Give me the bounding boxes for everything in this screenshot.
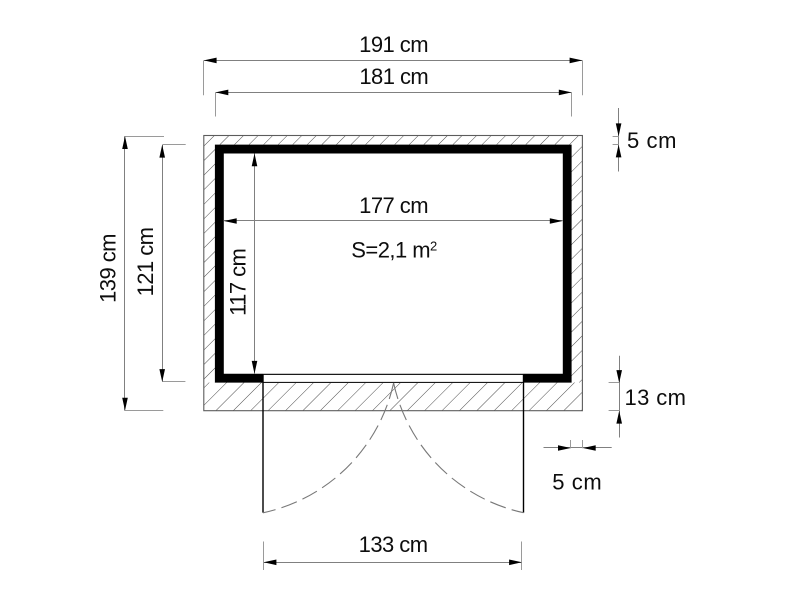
svg-text:117 cm: 117 cm <box>225 249 250 316</box>
svg-text:S=2,1 m2: S=2,1 m2 <box>351 237 437 262</box>
svg-text:13 cm: 13 cm <box>625 385 687 410</box>
svg-text:139 cm: 139 cm <box>96 234 121 303</box>
svg-text:191 cm: 191 cm <box>359 32 428 57</box>
svg-text:5 cm: 5 cm <box>627 128 677 153</box>
svg-text:181 cm: 181 cm <box>359 64 428 89</box>
svg-text:121 cm: 121 cm <box>133 228 158 297</box>
svg-text:177 cm: 177 cm <box>359 193 428 218</box>
svg-text:5 cm: 5 cm <box>552 469 602 494</box>
svg-text:133 cm: 133 cm <box>359 532 428 557</box>
